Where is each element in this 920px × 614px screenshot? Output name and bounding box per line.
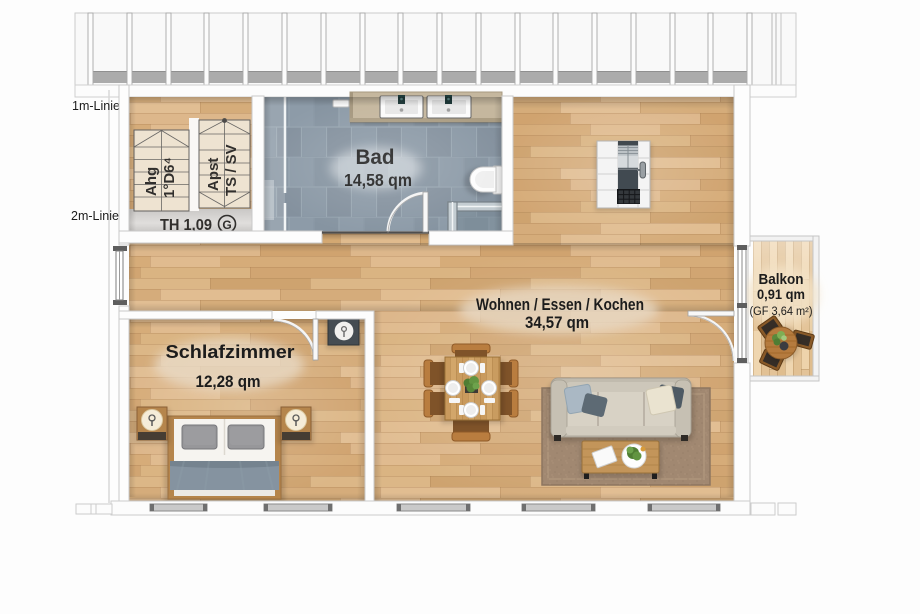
svg-text:1m-Linie: 1m-Linie [72,99,120,113]
svg-text:(GF 3,64 m²): (GF 3,64 m²) [750,306,813,318]
svg-text:12,28 qm: 12,28 qm [196,372,261,391]
svg-text:Schlafzimmer: Schlafzimmer [166,342,295,362]
svg-text:Wohnen / Essen / Kochen: Wohnen / Essen / Kochen [476,295,644,314]
svg-text:2m-Linie: 2m-Linie [71,209,119,223]
svg-text:Balkon: Balkon [759,272,804,288]
svg-text:34,57 qm: 34,57 qm [525,313,589,332]
svg-text:0,91 qm: 0,91 qm [757,287,805,302]
